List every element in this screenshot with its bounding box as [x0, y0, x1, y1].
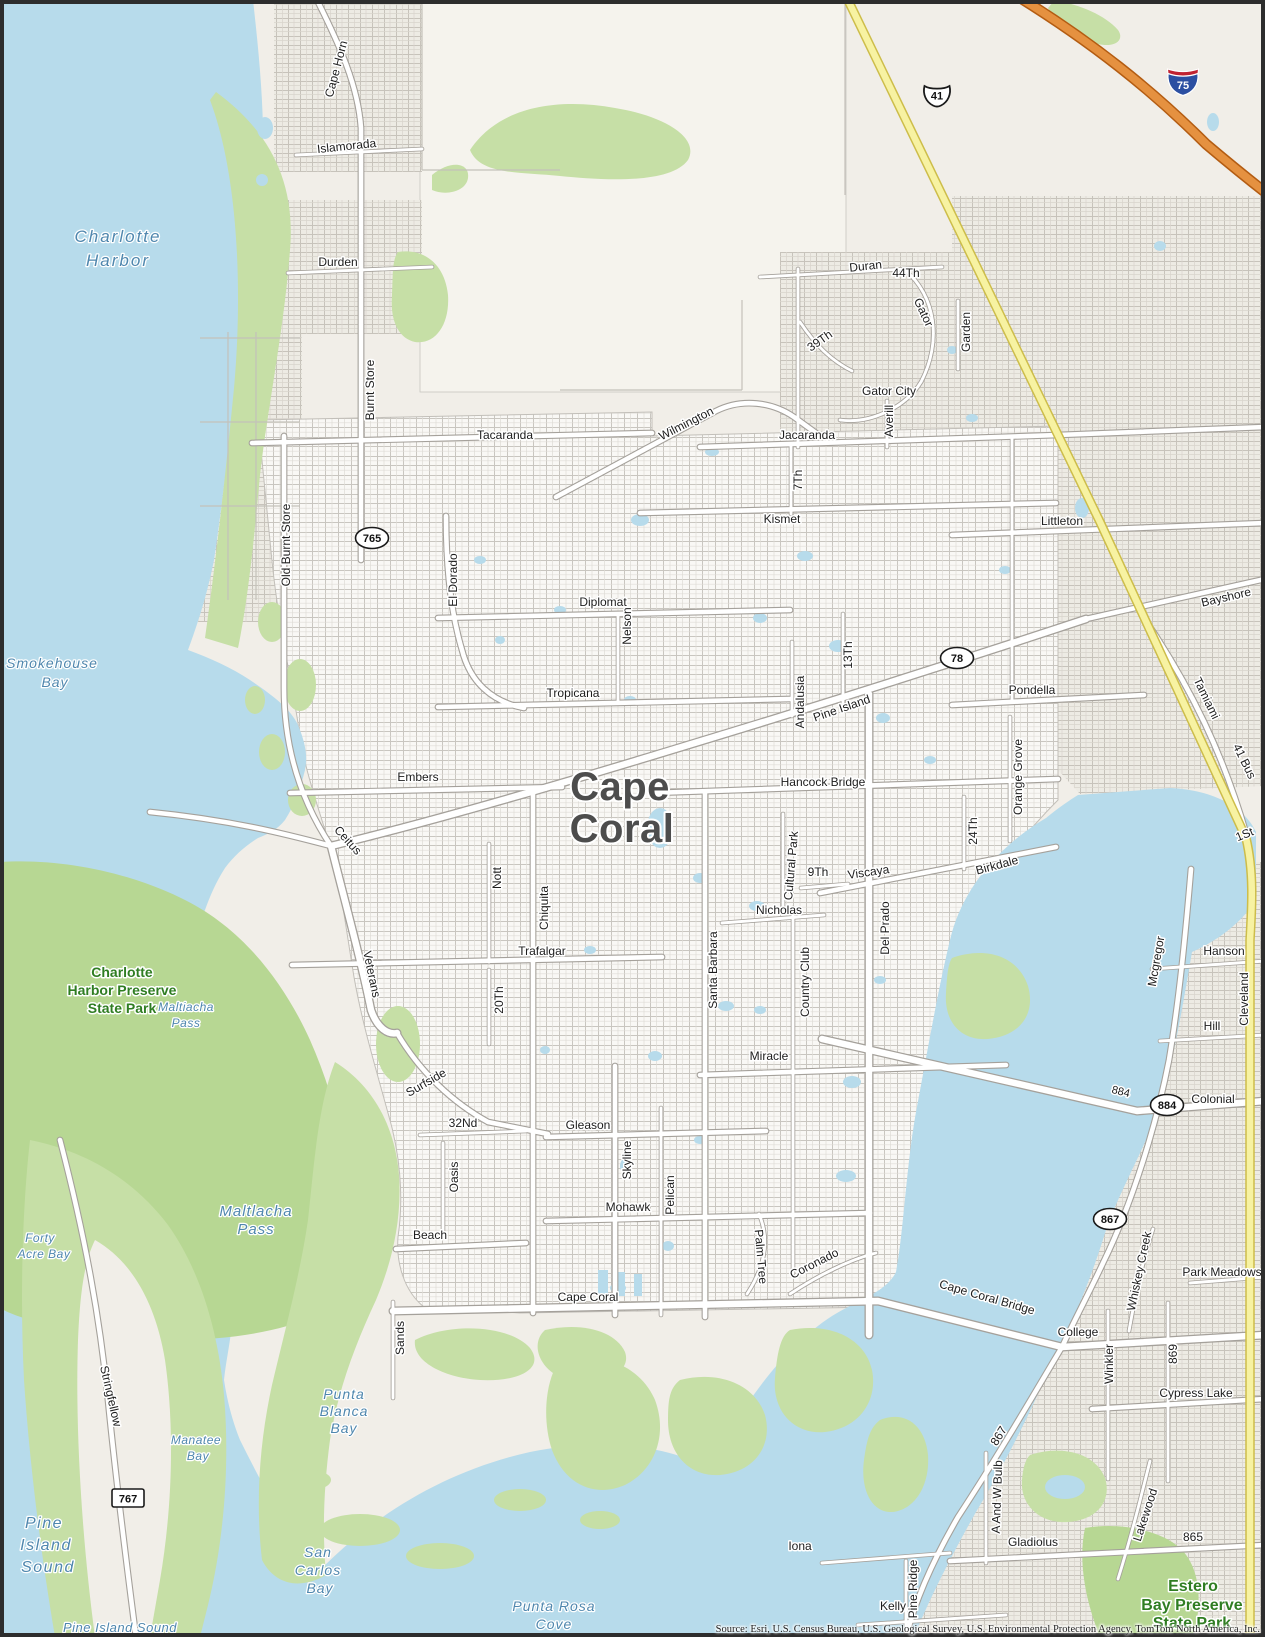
road-label: 20Th — [492, 986, 506, 1013]
road-label: Chiquita — [537, 886, 551, 930]
road-label: El Dorado — [446, 553, 460, 607]
road-label: Skyline — [620, 1140, 634, 1179]
svg-text:765: 765 — [363, 533, 381, 545]
road-label: Santa Barbara — [706, 931, 720, 1009]
road-label: 9Th — [808, 865, 829, 879]
road-label: Hancock Bridge — [781, 775, 866, 789]
park-label: State Park — [88, 1000, 157, 1016]
road-label: Pine Ridge — [906, 1559, 920, 1618]
city-label: Coral — [570, 807, 675, 851]
water-label: Charlotte — [75, 227, 162, 246]
svg-text:78: 78 — [951, 653, 963, 665]
water-label: Pine — [25, 1515, 63, 1532]
road-label: Tacaranda — [477, 428, 533, 442]
road-label: 865 — [1183, 1530, 1203, 1544]
water-label: Cove — [536, 1616, 573, 1632]
map-frame: CapeCoralCape HornIslamoradaDurdenDuran4… — [0, 0, 1265, 1637]
road-label: Embers — [397, 770, 438, 784]
water-label: Forty — [25, 1231, 55, 1245]
road-label: Nott — [490, 866, 504, 889]
road-label: Andalusia — [793, 675, 807, 728]
svg-text:41: 41 — [931, 91, 943, 103]
park-label: Charlotte — [91, 964, 153, 980]
water-label: Island — [20, 1537, 72, 1554]
road-label: Del Prado — [878, 901, 892, 955]
map-canvas: CapeCoralCape HornIslamoradaDurdenDuran4… — [0, 0, 1265, 1637]
water-label: Pass — [237, 1221, 274, 1238]
water-label: Pine Island Sound — [63, 1620, 177, 1635]
road-label: Durden — [318, 255, 357, 269]
road-label: Averill — [882, 405, 896, 437]
road-label: Colonial — [1191, 1092, 1234, 1106]
road-label: Old Burnt Store — [279, 503, 293, 586]
road-label: Pelican — [663, 1175, 677, 1214]
road-label: 13Th — [841, 641, 855, 668]
road-label: Kelly — [880, 1599, 906, 1613]
road-label: Iona — [788, 1539, 812, 1553]
route-shield-78: 78 — [941, 648, 974, 669]
attribution: Source: Esri, U.S. Census Bureau, U.S. G… — [716, 1624, 1260, 1635]
road-label: Nicholas — [756, 903, 802, 917]
road-label: Sands — [393, 1321, 407, 1355]
water-label: Blanca — [320, 1403, 369, 1419]
water-label: Sound — [21, 1559, 75, 1576]
road-label: Garden — [959, 312, 973, 352]
road-label: Cypress Lake — [1159, 1386, 1233, 1400]
road-label: Gladiolus — [1008, 1535, 1058, 1549]
road-label: Hill — [1204, 1019, 1221, 1033]
svg-text:867: 867 — [1101, 1214, 1119, 1226]
road-label: Country Club — [798, 947, 812, 1017]
svg-text:767: 767 — [119, 1494, 137, 1506]
water-label: Pass — [172, 1016, 201, 1030]
water-label: Manatee — [171, 1433, 221, 1447]
water-label: Bay — [306, 1580, 333, 1596]
road-label: Pondella — [1009, 683, 1056, 697]
water-label: Carlos — [295, 1562, 341, 1578]
road-label: Burnt Store — [363, 359, 377, 420]
road-label: Beach — [413, 1228, 447, 1242]
water-label: Harbor — [86, 251, 150, 270]
city-label: Cape — [570, 765, 670, 809]
road-label: Diplomat — [579, 595, 627, 609]
road-label: 44Th — [892, 266, 919, 280]
svg-text:884: 884 — [1158, 1100, 1177, 1112]
road-label: 32Nd — [449, 1116, 478, 1130]
road-label: Cleveland — [1237, 972, 1251, 1025]
road-label: A And W Bulb — [989, 1460, 1006, 1534]
road-label: Oasis — [447, 1162, 461, 1193]
road-label: Mohawk — [606, 1200, 652, 1214]
road-label: Jacaranda — [779, 428, 835, 442]
route-shield-867: 867 — [1094, 1209, 1127, 1230]
water-label: Maltlacha — [219, 1203, 292, 1220]
route-shield-767: 767 — [112, 1489, 144, 1507]
svg-text:75: 75 — [1177, 80, 1189, 92]
road-label: 7Th — [791, 470, 805, 491]
road-label: 24Th — [966, 817, 980, 844]
road-label: Park Meadows — [1182, 1265, 1261, 1279]
water-label: Bay — [41, 674, 68, 690]
park-label: Bay Preserve — [1141, 1597, 1243, 1614]
road-label: Orange Grove — [1011, 739, 1025, 815]
road-label: Trafalgar — [518, 944, 566, 958]
road-label: Littleton — [1041, 514, 1083, 528]
water-label: Maltiacha — [158, 1000, 214, 1014]
road-label: Kismet — [764, 512, 801, 526]
road-label: College — [1058, 1325, 1099, 1339]
road-label: Tropicana — [547, 686, 600, 700]
water-label: San — [304, 1544, 332, 1560]
park-label: Harbor Preserve — [68, 982, 177, 998]
road-label: Cape Coral — [558, 1290, 619, 1304]
water-label: Punta — [323, 1386, 365, 1402]
water-label: Acre Bay — [17, 1247, 71, 1261]
water-label: Smokehouse — [6, 655, 98, 671]
water-label: Bay — [330, 1420, 357, 1436]
water-label: Bay — [187, 1449, 210, 1463]
road-label: Miracle — [750, 1049, 789, 1063]
road-label: Hanson — [1203, 944, 1244, 958]
water-label: Punta Rosa — [512, 1598, 595, 1614]
route-shield-765: 765 — [356, 528, 389, 549]
road-label: 869 — [1166, 1344, 1180, 1364]
road-label: Gleason — [566, 1118, 611, 1132]
road-label: Gator City — [862, 384, 916, 398]
park-label: Estero — [1168, 1578, 1218, 1595]
route-shield-884: 884 — [1151, 1095, 1184, 1116]
road-label: Winkler — [1102, 1344, 1116, 1384]
road-label: Nelson — [620, 607, 634, 644]
